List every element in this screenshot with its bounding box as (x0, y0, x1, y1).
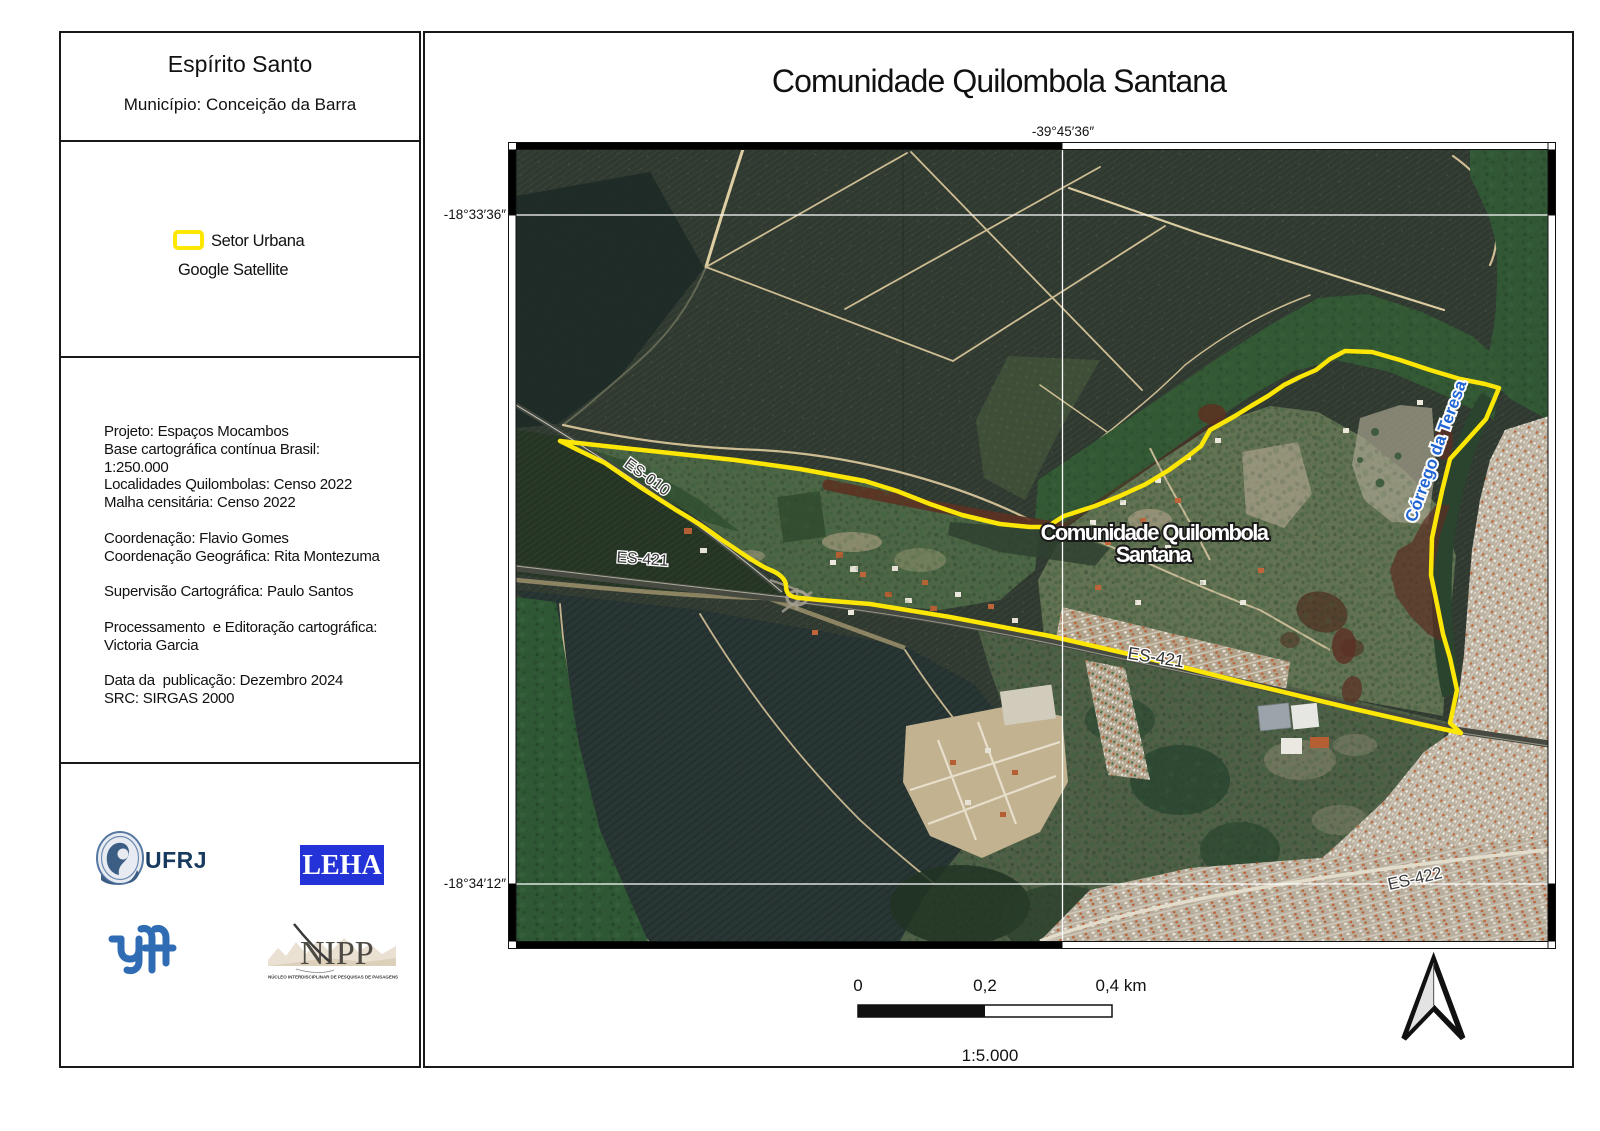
svg-text:0,2: 0,2 (973, 976, 997, 995)
svg-text:UFRJ: UFRJ (145, 847, 207, 873)
svg-text:0: 0 (853, 976, 862, 995)
svg-text:0,4 km: 0,4 km (1095, 976, 1146, 995)
svg-text:Santana: Santana (1116, 542, 1193, 567)
svg-text:ES-421: ES-421 (616, 549, 669, 570)
svg-text:NIPP: NIPP (300, 935, 374, 972)
svg-text:NÚCLEO INTERDISCIPLINAR DE PES: NÚCLEO INTERDISCIPLINAR DE PESQUISAS DE … (268, 974, 398, 980)
